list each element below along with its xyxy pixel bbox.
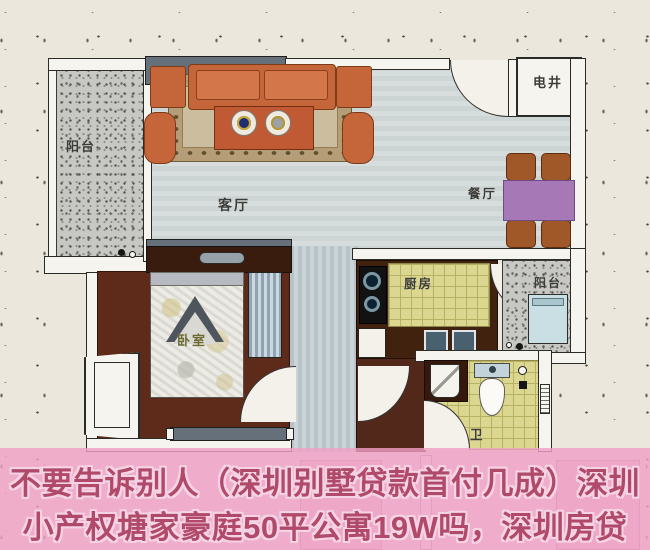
caption-line-2: 小产权塘家豪庭50平公寓19W吗，深圳房贷 [0,506,650,550]
screenshot-root: { "image_type": "real-estate floor plan … [0,0,650,550]
armchair [150,66,186,108]
caption-line-1: 不要告诉别人（深圳别墅贷款首付几成）深圳 [0,462,650,506]
room-label-balcony-right: 阳台 [534,274,562,291]
fridge [358,328,386,358]
floor-drain-dot [129,251,136,258]
balcony-right-outer-wall [570,248,586,360]
bathroom-fixture-dot [518,366,527,375]
tv-cabinet-handle [199,252,245,264]
stove-burner [364,296,380,312]
dining-table [503,180,575,221]
sofa-cushion [196,70,260,100]
kitchen-top-wall [352,248,586,260]
floor-drain-dot [506,342,512,348]
plate-food [271,116,285,130]
bathroom-fixture-dot [519,381,527,389]
bedroom-window-cap [286,428,294,440]
bedroom-window-cap [166,428,174,440]
wardrobe [248,272,282,358]
floor-drain-dot [118,249,125,256]
shower-tray [430,364,460,398]
stove-burner [363,272,381,290]
chaise-seat [144,112,176,164]
armchair [336,66,372,108]
room-label-bathroom: 卫 [470,424,485,443]
chaise-seat [342,112,374,164]
toilet-tank-button [489,366,496,373]
room-label-living: 客厅 [218,195,250,215]
coffee-table [214,106,314,150]
room-label-dining: 餐厅 [468,183,497,202]
dining-chair [541,153,571,181]
bedroom-window [170,427,290,441]
bay-window-inner-line [94,362,130,428]
room-label-kitchen: 厨房 [404,273,433,292]
bathroom-right-window [540,384,550,414]
room-balcony-left-floor [56,70,148,260]
bed-pillow-band [150,272,244,286]
washing-machine-panel [532,298,564,306]
caption-band: 不要告诉别人（深圳别墅贷款首付几成）深圳 小产权塘家豪庭50平公寓19W吗，深圳… [0,448,650,550]
dining-chair [506,220,536,248]
sofa-cushion [264,70,328,100]
room-label-bedroom: 卧室 [177,330,207,349]
room-label-balcony-left: 阳台 [66,136,96,155]
floor-drain-dot [516,343,523,350]
room-label-utility-shaft: 电井 [533,72,563,91]
balcony-left-top-sill [48,58,150,71]
plate-food [237,116,251,130]
dining-chair [541,220,571,248]
dining-chair [506,153,536,181]
